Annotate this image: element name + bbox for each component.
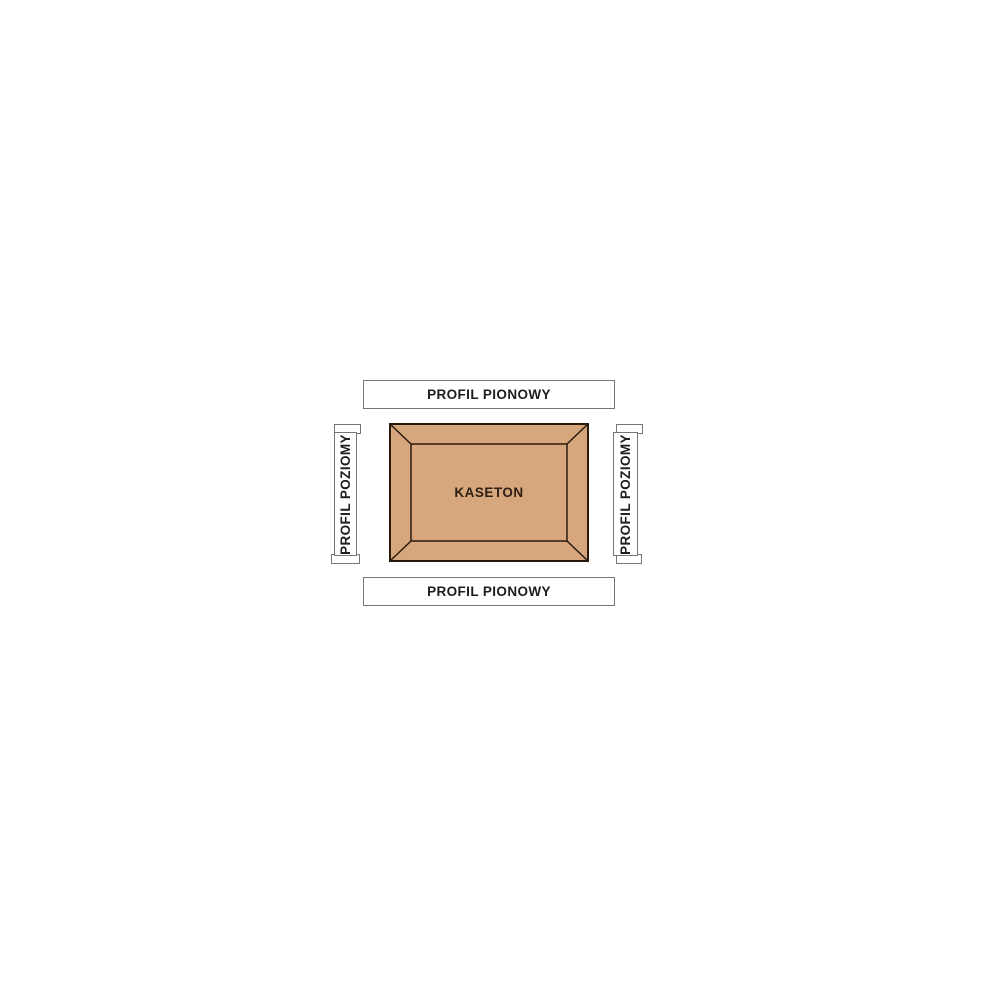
profile-poziomy-left-label: PROFIL POZIOMY	[338, 434, 353, 555]
profile-pionowy-bottom-box: PROFIL PIONOWY	[363, 577, 615, 606]
profile-poziomy-right-label: PROFIL POZIOMY	[618, 434, 633, 555]
kaseton-panel: KASETON	[389, 423, 589, 562]
profile-poziomy-left-bar: PROFIL POZIOMY	[334, 432, 357, 556]
profile-pionowy-top-label: PROFIL PIONOWY	[427, 387, 551, 402]
profile-pionowy-top-box: PROFIL PIONOWY	[363, 380, 615, 409]
profile-poziomy-right-bar: PROFIL POZIOMY	[613, 432, 638, 556]
diagram-canvas: PROFIL PIONOWY PROFIL PIONOWY PROFIL POZ…	[0, 0, 1000, 1000]
profile-pionowy-bottom-label: PROFIL PIONOWY	[427, 584, 551, 599]
kaseton-frame-drawing	[389, 423, 589, 562]
